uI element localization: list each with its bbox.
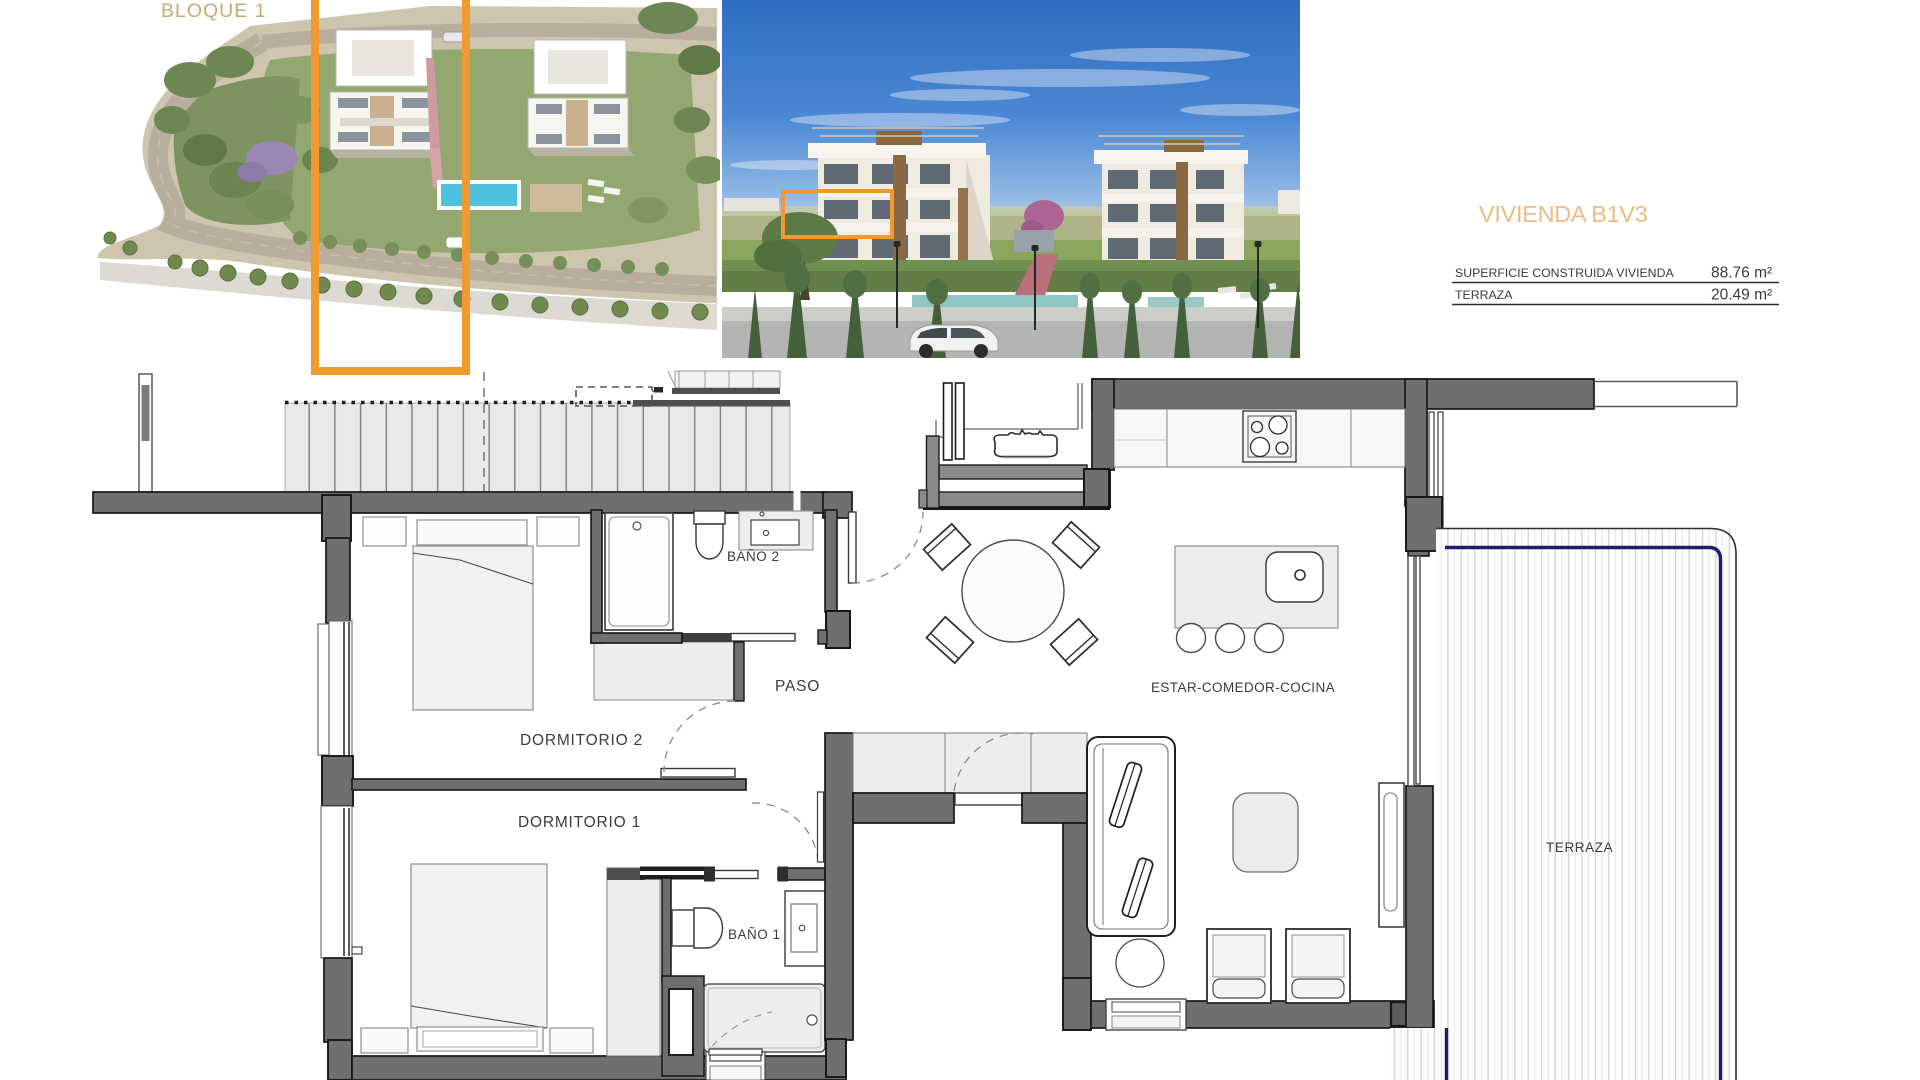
svg-text:20.49 m²: 20.49 m² (1711, 287, 1772, 304)
svg-text:TERRAZA: TERRAZA (1546, 840, 1613, 855)
svg-text:BAÑO 1: BAÑO 1 (728, 927, 781, 942)
svg-text:DORMITORIO 1: DORMITORIO 1 (518, 814, 641, 831)
svg-text:BLOQUE 1: BLOQUE 1 (161, 0, 267, 22)
svg-text:BAÑO 2: BAÑO 2 (727, 549, 780, 564)
svg-text:DORMITORIO 2: DORMITORIO 2 (520, 732, 643, 749)
svg-text:TERRAZA: TERRAZA (1455, 288, 1513, 302)
svg-text:PASO: PASO (775, 678, 820, 695)
svg-text:SUPERFICIE CONSTRUIDA VIVIENDA: SUPERFICIE CONSTRUIDA VIVIENDA (1455, 266, 1674, 280)
svg-text:VIVIENDA B1V3: VIVIENDA B1V3 (1479, 201, 1648, 227)
svg-text:ESTAR-COMEDOR-COCINA: ESTAR-COMEDOR-COCINA (1151, 680, 1335, 695)
svg-text:88.76 m²: 88.76 m² (1711, 265, 1772, 282)
